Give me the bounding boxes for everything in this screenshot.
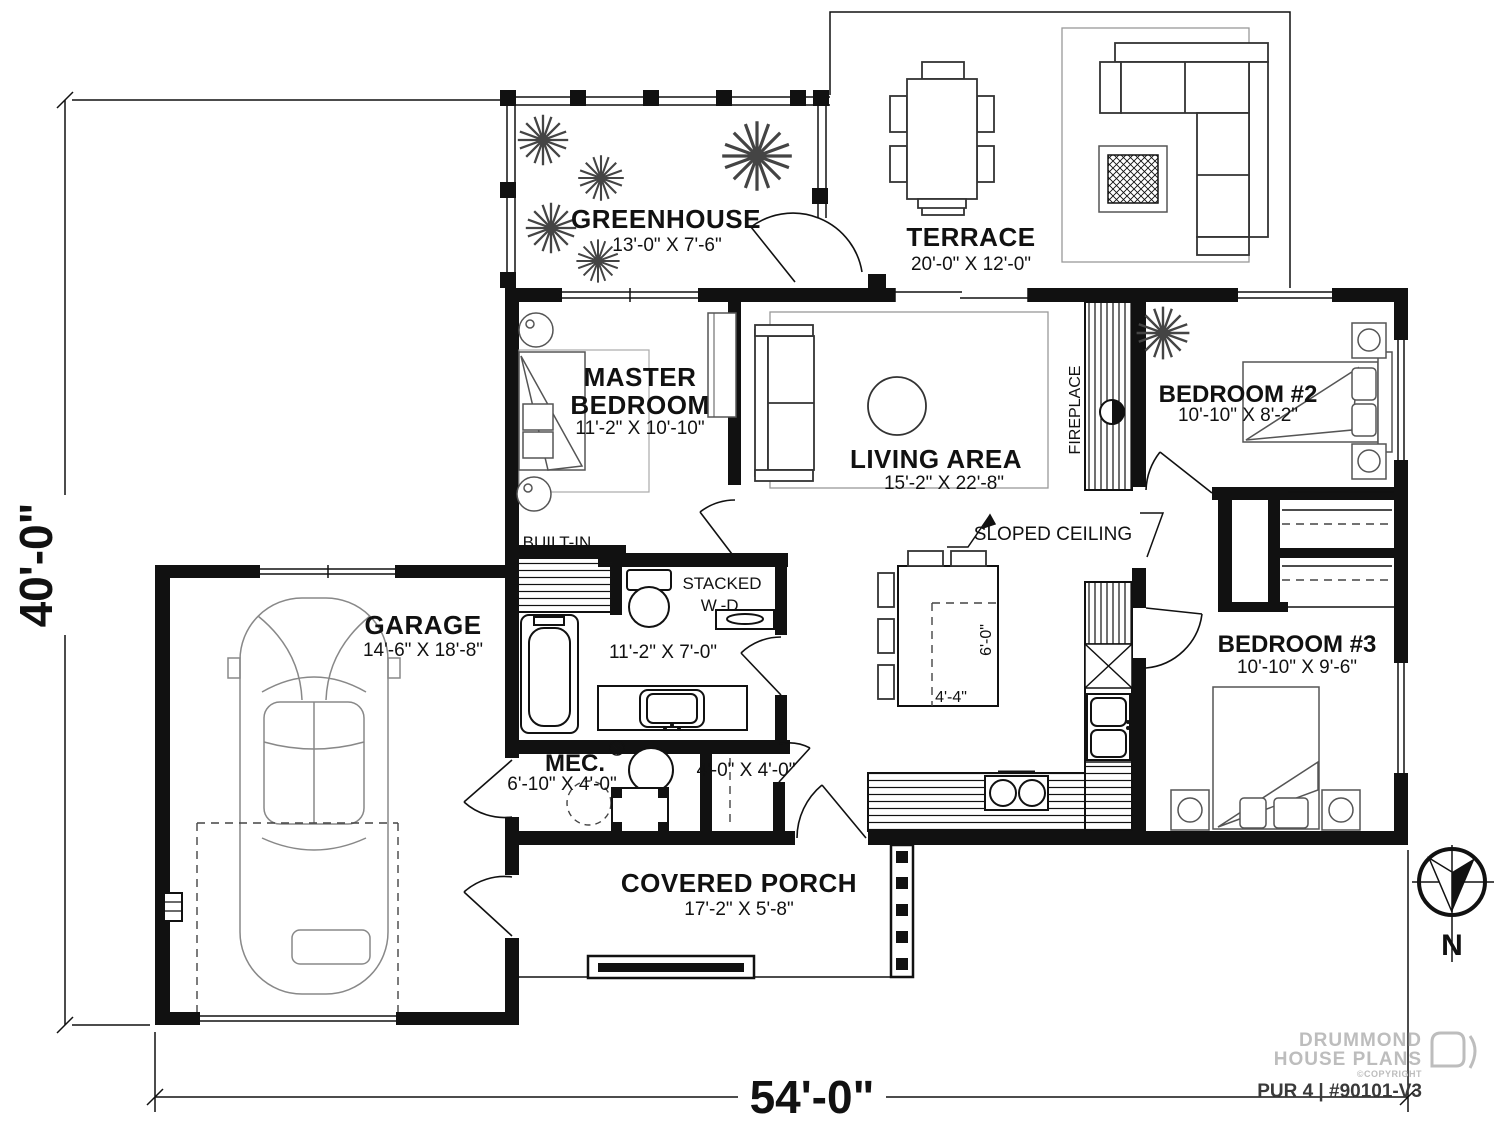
double-sink xyxy=(1087,694,1130,760)
terrace-fire-table xyxy=(1099,146,1167,212)
mec-table xyxy=(612,788,668,832)
bathtub xyxy=(521,615,578,733)
garage-side-panel xyxy=(164,893,182,921)
master-dresser xyxy=(708,313,736,417)
brand-logo-icon xyxy=(1432,1033,1475,1068)
label-closet-dims: 4'-0" X 4'-0" xyxy=(697,760,796,781)
label-master-dims: 11'-2" X 10'-10" xyxy=(575,418,704,439)
bedroom2-door-swing xyxy=(1146,452,1212,493)
fireplace xyxy=(1085,302,1132,490)
bedroom2-side-window xyxy=(1394,340,1408,460)
front-door-opening xyxy=(795,831,868,845)
water-heater xyxy=(629,748,673,792)
label-greenhouse-dims: 13'-0" X 7'-6" xyxy=(612,235,721,256)
kitchen xyxy=(868,551,1132,831)
brand-line2: HOUSE PLANS xyxy=(1274,1049,1422,1070)
label-garage: GARAGE xyxy=(364,610,481,640)
plant-symbols xyxy=(518,115,792,283)
bedroom3-door-swing xyxy=(1146,608,1202,668)
bedroom3-side-window xyxy=(1394,663,1408,773)
master-window xyxy=(562,288,698,302)
toilet xyxy=(627,570,671,627)
built-in-cabinet xyxy=(518,558,613,612)
label-fireplace: FIREPLACE xyxy=(1067,366,1084,455)
garage-window xyxy=(260,565,395,578)
vanity-sink xyxy=(598,686,747,731)
overall-width-label: 54'-0" xyxy=(750,1071,875,1123)
terrace-dining-table xyxy=(890,62,994,215)
garage-overhead-door xyxy=(200,1012,396,1025)
label-sloped-ceiling: SLOPED CEILING xyxy=(974,524,1132,545)
label-terrace: TERRACE xyxy=(906,222,1035,252)
label-bedroom3-dims: 10'-10" X 9'-6" xyxy=(1237,657,1357,678)
coffee-table xyxy=(868,377,926,435)
living-patio-door xyxy=(895,288,1028,302)
label-garage-dims: 14'-6" X 18'-8" xyxy=(363,640,483,661)
bedroom2-window xyxy=(1238,288,1332,302)
label-master-2: BEDROOM xyxy=(570,390,709,420)
copyright-note: ©COPYRIGHT xyxy=(1357,1069,1422,1079)
greenhouse-door-swing xyxy=(751,213,862,282)
garage-porch-door-opening xyxy=(505,875,519,938)
label-master-1: MASTER xyxy=(584,362,697,392)
kitchen-counter-right xyxy=(1085,582,1132,830)
front-door-swing xyxy=(797,785,866,838)
label-island-depth: 6'-0" xyxy=(978,624,995,656)
master-nightstand xyxy=(519,313,553,347)
label-porch: COVERED PORCH xyxy=(621,868,857,898)
terrace-zone xyxy=(830,12,1290,288)
label-built-in: BUILT-IN xyxy=(523,533,592,552)
label-bedroom2: BEDROOM #2 xyxy=(1159,381,1318,408)
label-island-width: 4'-4" xyxy=(935,689,967,706)
label-living: LIVING AREA xyxy=(850,444,1022,474)
compass: N xyxy=(1412,845,1494,962)
floor-plan-sheet: 40'-0" 54'-0" xyxy=(0,0,1500,1126)
label-stacked-2: W.-D. xyxy=(701,596,744,615)
label-living-dims: 15'-2" X 22'-8" xyxy=(884,473,1004,494)
plan-number: PUR 4 | #90101-V3 xyxy=(1257,1081,1422,1102)
overall-height-label: 40'-0" xyxy=(10,503,62,628)
porch-columns xyxy=(891,845,913,977)
master-door-swing xyxy=(700,500,735,558)
label-bedroom3: BEDROOM #3 xyxy=(1218,631,1377,658)
label-mec: MEC. xyxy=(545,750,605,777)
compass-north-label: N xyxy=(1441,929,1463,962)
label-mec-dims: 6'-10" X 4'-0" xyxy=(507,774,616,795)
label-stacked-1: STACKED xyxy=(682,574,761,593)
label-terrace-dims: 20'-0" X 12'-0" xyxy=(911,254,1031,275)
brand-line1: DRUMMOND xyxy=(1299,1030,1422,1051)
garage-porch-door-swing xyxy=(464,876,512,936)
floor-drain xyxy=(610,741,624,755)
label-bedroom2-dims: 10'-10" X 8'-2" xyxy=(1178,405,1298,426)
greenhouse-zone xyxy=(500,90,886,289)
label-greenhouse: GREENHOUSE xyxy=(571,204,761,234)
master-nightstand xyxy=(517,477,551,511)
garage-mec-door-swing xyxy=(464,760,512,818)
title-block: DRUMMOND HOUSE PLANS ©COPYRIGHT PUR 4 | … xyxy=(1257,1030,1475,1102)
hall-closets xyxy=(1282,510,1392,580)
bedroom3-furniture xyxy=(1171,687,1360,830)
living-sofa xyxy=(755,325,814,481)
label-bath-dims: 11'-2" X 7'-0" xyxy=(609,642,717,663)
label-porch-dims: 17'-2" X 5'-8" xyxy=(684,899,793,920)
